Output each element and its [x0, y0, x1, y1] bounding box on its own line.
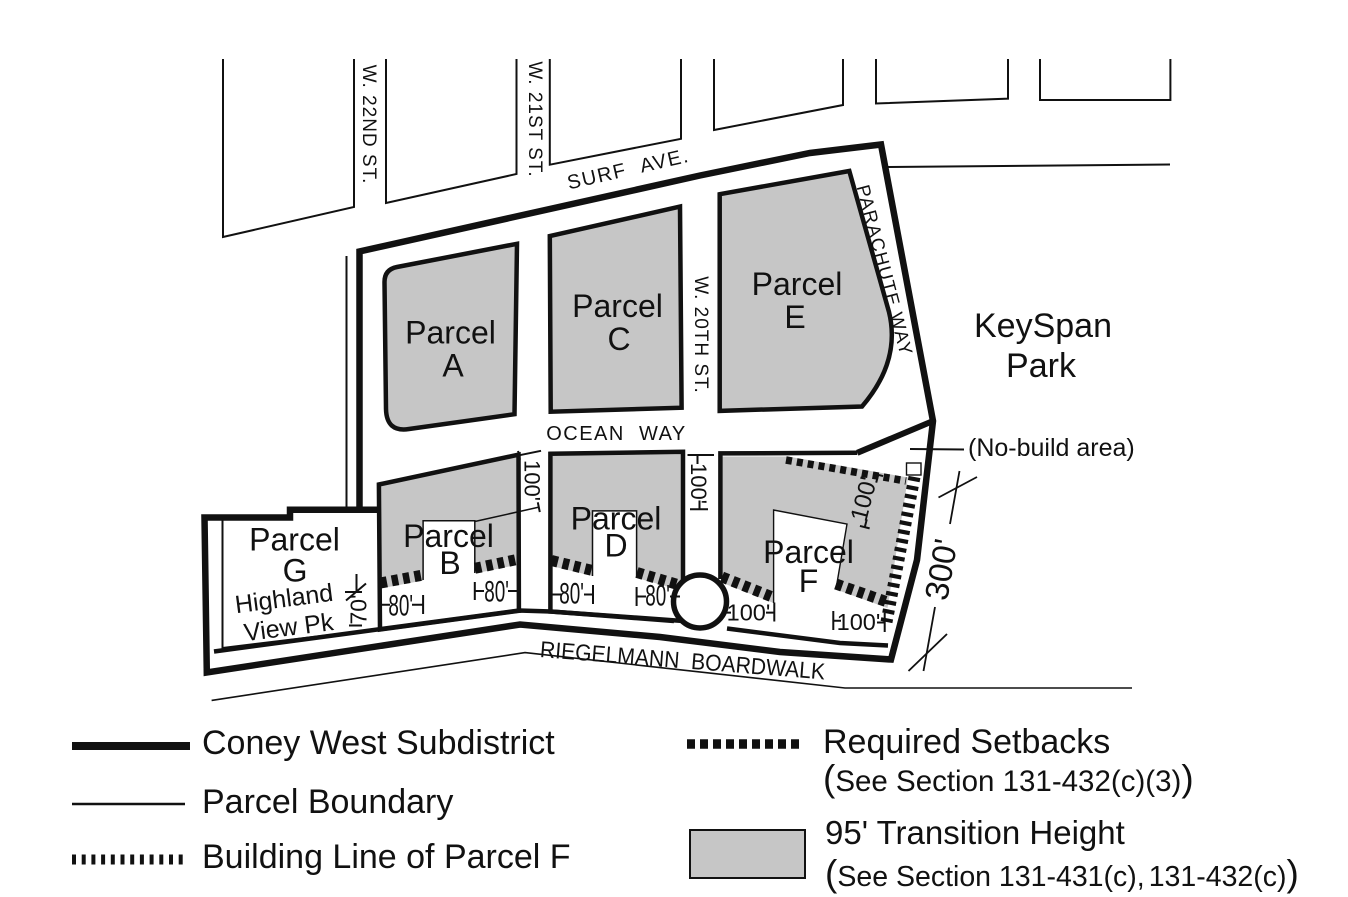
svg-text:80': 80' — [559, 577, 584, 611]
svg-text:A: A — [442, 348, 464, 384]
svg-text:100': 100' — [686, 463, 711, 504]
svg-text:(No-build area): (No-build area) — [968, 434, 1135, 462]
svg-text:Parcel: Parcel — [572, 288, 663, 324]
svg-text:70': 70' — [346, 595, 372, 625]
svg-text:80': 80' — [645, 579, 670, 613]
svg-text:W. 22ND ST.: W. 22ND ST. — [358, 65, 379, 185]
svg-text:80': 80' — [484, 575, 509, 609]
svg-text:B: B — [439, 545, 460, 581]
svg-text:Building Line of Parcel F: Building Line of Parcel F — [202, 838, 571, 876]
svg-text:100': 100' — [837, 609, 881, 635]
svg-text:D: D — [604, 528, 627, 564]
svg-text:Required Setbacks: Required Setbacks — [823, 723, 1110, 761]
svg-text:100': 100' — [520, 460, 545, 501]
svg-text:Coney West Subdistrict: Coney West Subdistrict — [202, 724, 555, 762]
svg-text:95' Transition Height: 95' Transition Height — [825, 814, 1125, 851]
svg-text:E: E — [784, 299, 805, 335]
svg-text:KeySpan: KeySpan — [974, 307, 1112, 345]
svg-text:Park: Park — [1006, 347, 1077, 385]
svg-text:100': 100' — [727, 600, 771, 626]
svg-text:(See Section 131-432(c)(3)): (See Section 131-432(c)(3)) — [823, 758, 1194, 799]
svg-text:80': 80' — [388, 589, 413, 623]
svg-text:W. 20TH ST.: W. 20TH ST. — [690, 276, 711, 394]
svg-text:W. 21ST ST.: W. 21ST ST. — [524, 61, 545, 177]
svg-text:Parcel: Parcel — [405, 315, 496, 351]
svg-text:F: F — [799, 563, 819, 599]
svg-text:OCEAN WAY: OCEAN WAY — [546, 423, 687, 445]
svg-text:Parcel: Parcel — [752, 266, 843, 302]
svg-text:C: C — [607, 321, 630, 357]
svg-text:Parcel Boundary: Parcel Boundary — [202, 783, 453, 821]
